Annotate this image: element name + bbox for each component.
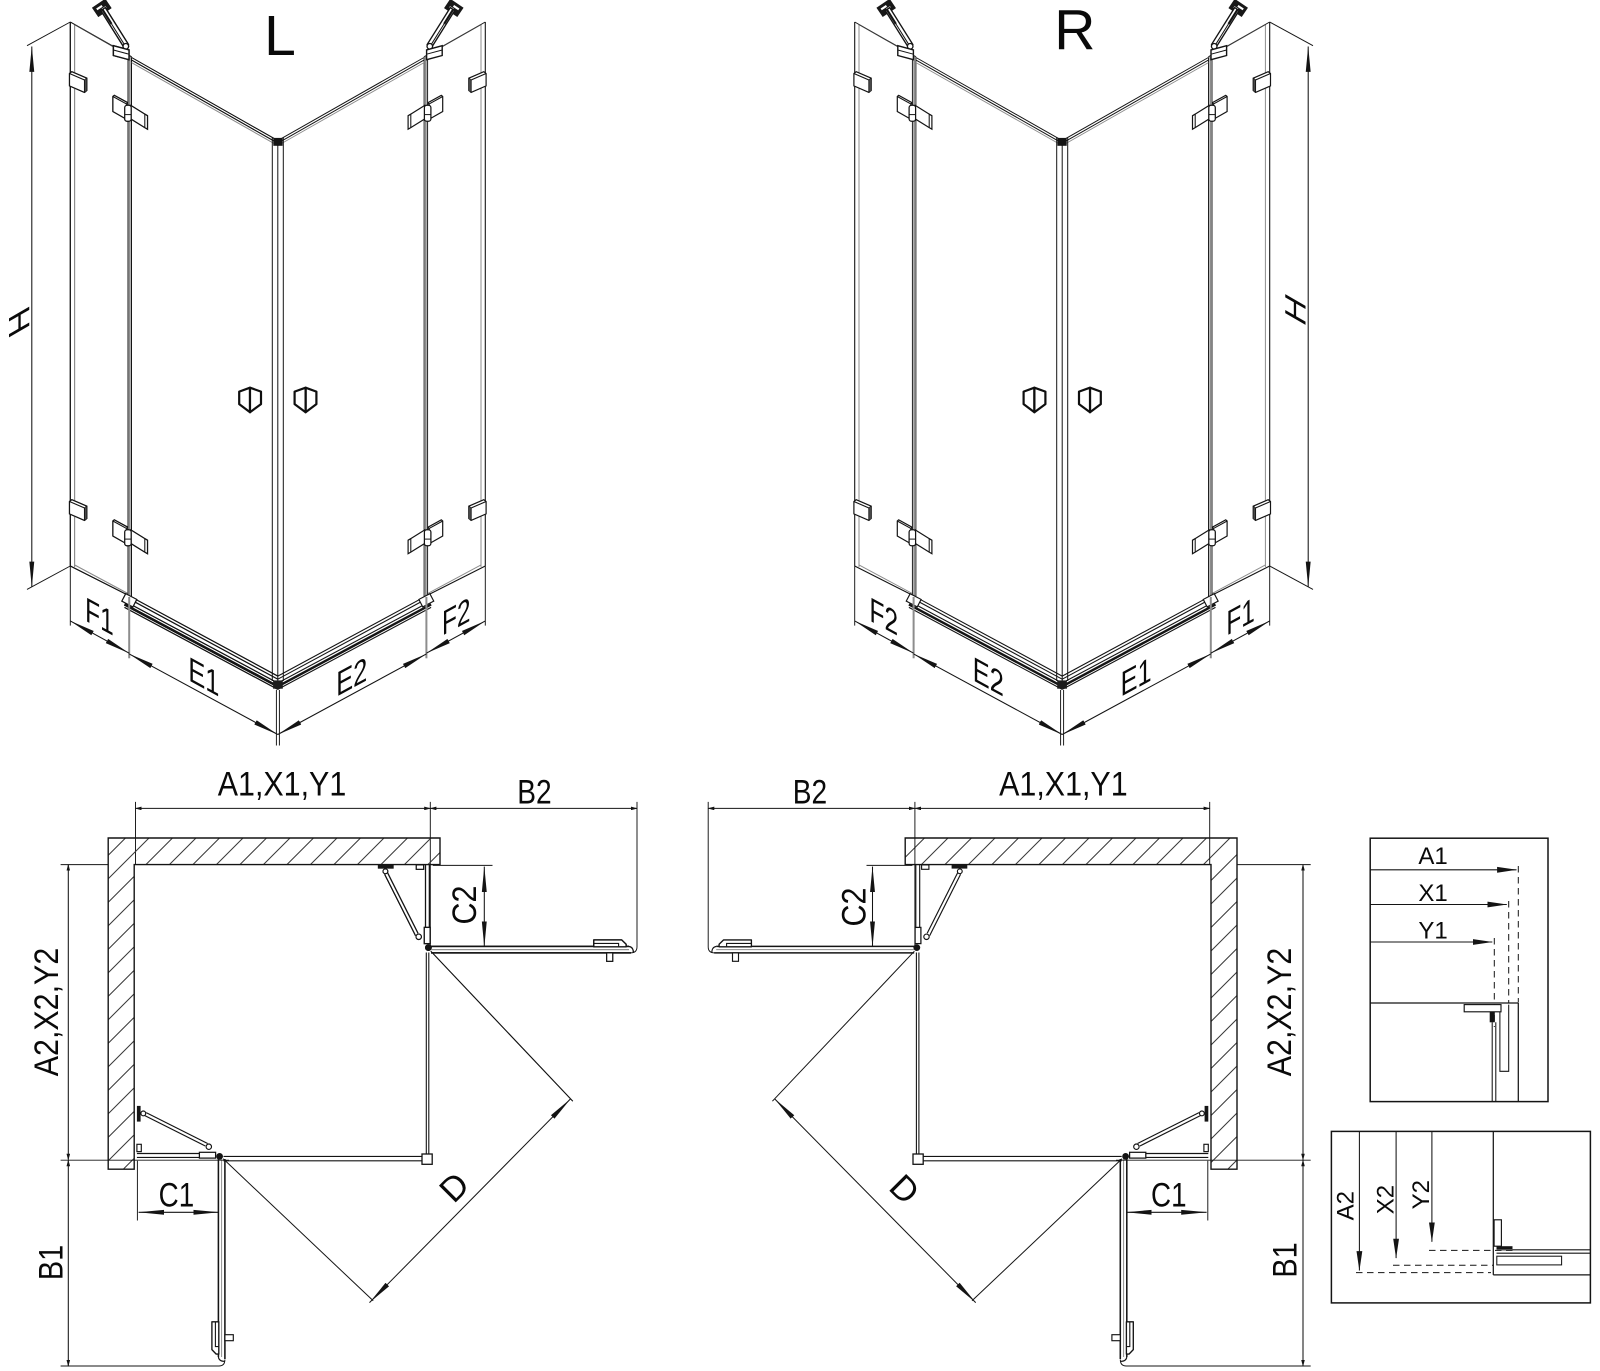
svg-text:H: H: [1279, 288, 1312, 332]
svg-text:C1: C1: [159, 1176, 195, 1214]
svg-text:F2: F2: [442, 590, 471, 644]
svg-text:F2: F2: [870, 590, 899, 644]
svg-text:Y2: Y2: [1408, 1180, 1435, 1209]
svg-text:A2,X2,Y2: A2,X2,Y2: [28, 948, 66, 1077]
svg-text:D: D: [882, 1168, 926, 1212]
svg-text:X1: X1: [1418, 880, 1447, 907]
svg-text:E2: E2: [336, 649, 367, 704]
svg-text:E2: E2: [973, 649, 1004, 704]
svg-text:B2: B2: [517, 774, 551, 812]
svg-text:E1: E1: [188, 649, 219, 704]
svg-text:B1: B1: [33, 1245, 71, 1280]
svg-text:H: H: [2, 301, 35, 345]
svg-text:B2: B2: [793, 774, 827, 812]
svg-text:C2: C2: [836, 888, 874, 927]
svg-text:L: L: [264, 4, 296, 68]
svg-text:A1,X1,Y1: A1,X1,Y1: [218, 766, 347, 804]
svg-text:A1,X1,Y1: A1,X1,Y1: [999, 766, 1128, 804]
svg-text:D: D: [433, 1166, 477, 1210]
svg-text:C2: C2: [446, 886, 484, 925]
svg-text:Y1: Y1: [1418, 918, 1447, 945]
svg-text:X2: X2: [1373, 1185, 1400, 1214]
svg-text:B1: B1: [1267, 1242, 1305, 1277]
svg-text:A1: A1: [1418, 843, 1447, 870]
svg-text:A2,X2,Y2: A2,X2,Y2: [1261, 948, 1299, 1077]
svg-text:E1: E1: [1121, 649, 1152, 704]
svg-text:A2: A2: [1333, 1191, 1360, 1220]
svg-text:F1: F1: [1226, 590, 1255, 644]
svg-text:F1: F1: [85, 590, 114, 644]
svg-text:C1: C1: [1151, 1176, 1187, 1214]
svg-text:R: R: [1054, 0, 1095, 62]
